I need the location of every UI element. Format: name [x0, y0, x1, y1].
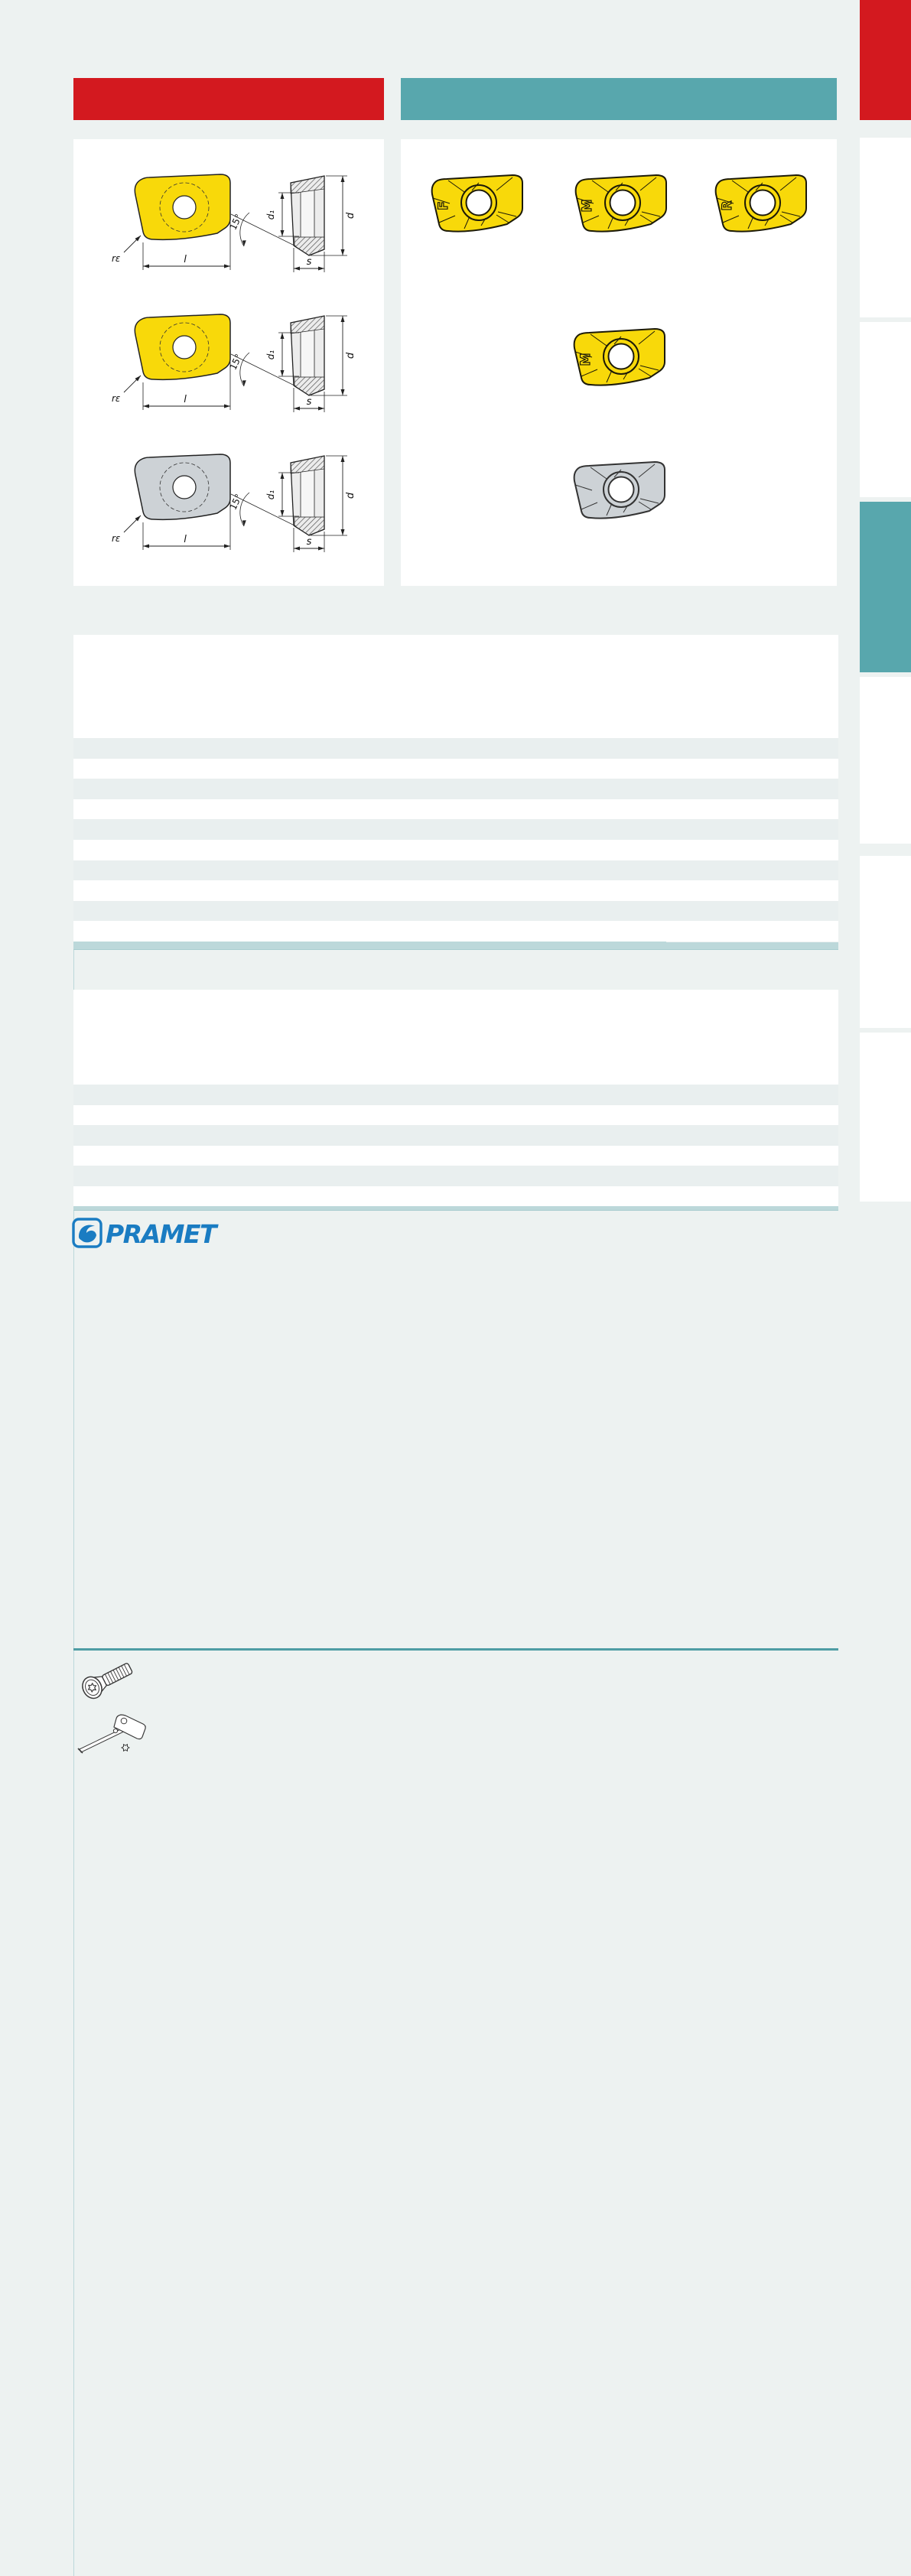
spare-parts-header [73, 990, 838, 1085]
drawings-panel: rε l d₁ 15° d [73, 139, 384, 586]
insert-photo-f: F [426, 172, 529, 236]
thickness-label: s [307, 256, 312, 268]
insert-photo-m2: M [568, 326, 672, 390]
corner-radius-label: rε [112, 533, 121, 544]
length-label: l [184, 534, 187, 545]
table-row [73, 779, 838, 799]
table-row [73, 819, 838, 840]
side-tab-7 [860, 1033, 911, 1202]
table-row [73, 1186, 838, 1207]
pramet-logo: PRAMET [72, 1218, 225, 1248]
table-row [73, 840, 838, 860]
insert-photo-r: R [710, 172, 813, 236]
catalog-page: { "page": {"bg": "#edf2f1"}, "bands": { … [0, 0, 911, 1288]
insert-side-view [291, 316, 324, 395]
table-row [73, 1125, 838, 1146]
insert-photos-panel: F M R M [401, 139, 837, 586]
outer-dia-label: d [345, 212, 356, 219]
insert-photo-m: M [570, 172, 673, 236]
chipbreaker-mark: M [578, 353, 594, 366]
table-row [73, 759, 838, 779]
outer-dia-label: d [345, 352, 356, 359]
table-row [73, 1105, 838, 1126]
table-row [73, 901, 838, 922]
side-tab-5 [860, 677, 911, 844]
insert-top-view [135, 174, 230, 239]
chipbreaker-mark: R [720, 200, 735, 210]
logo-swoosh-icon [79, 1225, 96, 1243]
side-tab-1 [860, 0, 911, 120]
inner-dia-label: d₁ [265, 350, 276, 360]
thickness-label: s [307, 396, 312, 408]
side-tab-3 [860, 322, 911, 497]
table-row [73, 1085, 838, 1105]
insert-top-view [135, 314, 230, 379]
table-row [73, 921, 838, 942]
torx-key-icon [73, 1709, 158, 1756]
thickness-label: s [307, 536, 312, 548]
logo-text: PRAMET [106, 1219, 219, 1248]
corner-radius-label: rε [112, 393, 121, 404]
side-tab-6 [860, 856, 911, 1028]
insert-drawing-3: rε l d₁ 15° d [107, 450, 360, 557]
table-row [73, 799, 838, 820]
spare-parts-table [73, 990, 838, 1208]
side-tab-4 [860, 502, 911, 672]
side-tab-2 [860, 138, 911, 317]
table-row [73, 738, 838, 759]
corner-radius-label: rε [112, 253, 121, 264]
inner-dia-label: d₁ [265, 490, 276, 500]
teal-header-band [401, 78, 837, 120]
chipbreaker-mark: M [580, 200, 595, 213]
table-row [73, 1166, 838, 1186]
inner-dia-label: d₁ [265, 210, 276, 220]
red-header-band [73, 78, 384, 120]
insert-side-view [291, 456, 324, 535]
insert-photo-gray [568, 459, 672, 523]
insert-drawing-1: rε l d₁ 15° d [107, 170, 360, 277]
table-row [73, 880, 838, 901]
outer-dia-label: d [345, 492, 356, 499]
insert-top-view [135, 454, 230, 519]
clamping-screw-icon [73, 1651, 142, 1709]
header-rule [73, 1648, 838, 1651]
insert-drawing-2: rε l d₁ 15° d [107, 310, 360, 417]
length-label: l [184, 254, 187, 265]
table-row [73, 1146, 838, 1166]
chipbreaker-mark: F [436, 201, 451, 210]
table-header [73, 635, 838, 738]
insert-dimensions-table [73, 635, 838, 944]
table-row [73, 860, 838, 881]
length-label: l [184, 394, 187, 405]
insert-side-view [291, 176, 324, 255]
